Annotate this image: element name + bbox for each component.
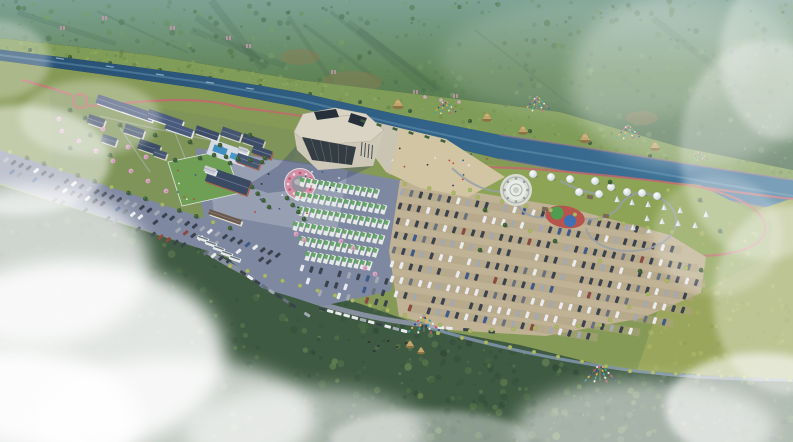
shrub [476, 195, 480, 199]
tree [188, 140, 193, 145]
shrub [666, 188, 670, 192]
tree [143, 196, 148, 201]
tree [267, 205, 272, 210]
tree [236, 156, 241, 161]
tree [285, 196, 290, 201]
shrub [651, 370, 655, 374]
shrub [646, 226, 650, 230]
shrub [604, 364, 608, 368]
tree [194, 214, 199, 219]
shrub [110, 185, 114, 189]
pedestrian [336, 190, 338, 192]
pedestrian [434, 157, 436, 159]
shrub [281, 279, 285, 283]
shrub [333, 294, 337, 298]
shrub [665, 279, 669, 283]
pedestrian [404, 166, 406, 168]
tree [248, 133, 253, 138]
tree [483, 208, 488, 213]
shrub [298, 284, 302, 288]
pedestrian [329, 187, 331, 189]
shrub [532, 350, 536, 354]
pedestrian [260, 199, 262, 201]
shrub [490, 328, 494, 332]
pedestrian [452, 162, 454, 164]
shrub [528, 229, 532, 233]
tree [224, 154, 229, 159]
shrub [524, 204, 528, 208]
shrub [403, 313, 407, 317]
tree [553, 239, 558, 244]
pedestrian [391, 159, 393, 161]
shrub [460, 336, 464, 340]
pedestrian [399, 148, 401, 150]
pedestrian [463, 174, 465, 176]
pedestrian [311, 171, 313, 173]
tree [503, 223, 508, 228]
tree [290, 203, 295, 208]
pedestrian [268, 173, 270, 175]
tree [218, 143, 223, 148]
shrub [468, 329, 472, 333]
tree [177, 208, 182, 213]
tree [296, 210, 301, 215]
shrub [580, 360, 584, 364]
shrub [621, 221, 625, 225]
pedestrian [452, 185, 454, 187]
pedestrian [306, 212, 308, 214]
mandala-plaza [500, 174, 532, 206]
shrub [646, 292, 650, 296]
cloud [20, 80, 160, 156]
tree [173, 158, 178, 163]
shrub [263, 274, 267, 278]
shrub [436, 331, 440, 335]
tree [263, 156, 268, 161]
tree [250, 185, 255, 190]
pedestrian [195, 174, 197, 176]
shrub [549, 208, 553, 212]
tree [126, 191, 131, 196]
shrub [228, 264, 232, 268]
pedestrian [462, 160, 464, 162]
tree [608, 180, 613, 185]
pedestrian [261, 183, 263, 185]
pedestrian [427, 164, 429, 166]
tree [638, 269, 643, 274]
pedestrian [338, 177, 340, 179]
shrub [427, 186, 431, 190]
tree [248, 158, 253, 163]
shrub [511, 327, 515, 331]
tree [198, 156, 203, 161]
pedestrian [464, 143, 466, 145]
pedestrian [279, 208, 281, 210]
tree [261, 198, 266, 203]
pedestrian [470, 153, 472, 155]
tree [260, 160, 265, 165]
shrub [598, 259, 602, 263]
tree [228, 161, 233, 166]
shrub [160, 203, 164, 207]
shrub [386, 308, 390, 312]
tree [302, 217, 307, 222]
shrub [598, 323, 602, 327]
pedestrian [281, 194, 283, 196]
tree [478, 248, 483, 253]
shrub [246, 269, 250, 273]
shrub [452, 191, 456, 195]
pedestrian [183, 196, 185, 198]
shrub [555, 325, 559, 329]
shrub [211, 220, 215, 224]
riverbank-tree [528, 129, 532, 133]
tree [228, 226, 233, 231]
shrub [316, 289, 320, 293]
shrub [368, 303, 372, 307]
tree [255, 191, 260, 196]
cloud [653, 175, 783, 295]
shrub [556, 355, 560, 359]
pedestrian [486, 158, 488, 160]
shrub [484, 341, 488, 345]
pedestrian [193, 198, 195, 200]
tree [212, 153, 217, 158]
pedestrian [297, 206, 299, 208]
shrub [627, 305, 631, 309]
cloud [440, 0, 760, 120]
pedestrian [448, 160, 450, 162]
shrub [403, 182, 407, 186]
riverbank-tree [468, 119, 472, 123]
autumn-patch [280, 49, 320, 65]
aerial-render [0, 0, 793, 442]
riverbank-tree [358, 100, 362, 104]
shrub [508, 345, 512, 349]
shrub [438, 323, 442, 327]
pedestrian [305, 175, 307, 177]
shrub [421, 318, 425, 322]
riverbank-tree [408, 109, 412, 113]
shrub [573, 213, 577, 217]
scene-canvas [0, 0, 793, 442]
pedestrian [254, 211, 256, 213]
shrub [533, 326, 537, 330]
shrub [468, 188, 472, 192]
shrub [351, 298, 355, 302]
pedestrian [178, 183, 180, 185]
pedestrian [468, 164, 470, 166]
shrub [576, 324, 580, 328]
shrub [597, 217, 601, 221]
shrub [500, 199, 504, 203]
pedestrian [462, 178, 464, 180]
shrub [628, 369, 632, 373]
pedestrian [177, 170, 179, 172]
pedestrian [219, 172, 221, 174]
pedestrian [177, 191, 179, 193]
pedestrian [186, 198, 188, 200]
pedestrian [322, 171, 324, 173]
shrub [674, 372, 678, 376]
shrub [608, 318, 612, 322]
